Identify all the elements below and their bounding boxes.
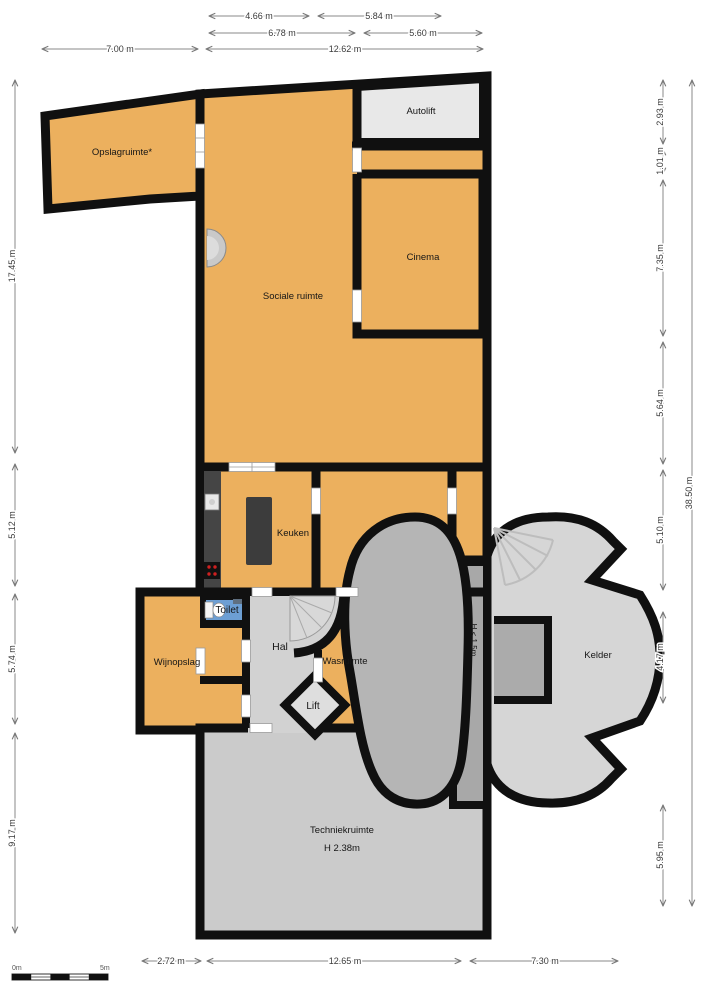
room-label-kelder: Kelder <box>584 650 611 661</box>
dim-top-3: 6.78 m <box>268 28 296 38</box>
dim-left-4: 9.17 m <box>7 819 17 847</box>
stove-burner <box>213 572 216 575</box>
room-label-wasruimte: Wasruimte <box>322 656 367 667</box>
floorplan-canvas: Opslagruimte* Autolift Cinema Sociale ru… <box>0 0 707 1000</box>
dim-top-2: 5.84 m <box>365 11 393 21</box>
room-label-cinema: Cinema <box>407 252 440 263</box>
stove-burner <box>207 565 210 568</box>
dim-top-4: 5.60 m <box>409 28 437 38</box>
dim-right-6: 4.17 m <box>655 643 665 671</box>
toilet-fixture-icon <box>205 602 213 618</box>
room-label-sociale-ruimte: Sociale ruimte <box>263 291 323 302</box>
room-label-toilet: Toilet <box>215 605 239 616</box>
label-low-clearance: H < 1.5m <box>469 624 478 657</box>
label-techniekruimte-height: H 2.38m <box>324 843 360 854</box>
dim-right-7: 5.95 m <box>655 841 665 869</box>
kelder-inner-room <box>494 620 548 700</box>
dim-left-2: 5.12 m <box>7 511 17 539</box>
dim-right-2: 1.01 m <box>655 147 665 175</box>
room-label-hal: Hal <box>272 641 288 653</box>
room-kelder <box>487 517 660 803</box>
kitchen-stove-icon <box>204 562 220 579</box>
dim-left-1: 17.45 m <box>7 250 17 283</box>
dim-left-3: 5.74 m <box>7 645 17 673</box>
room-label-wijnopslag: Wijnopslag <box>154 657 200 668</box>
dim-right-1: 2.93 m <box>655 98 665 126</box>
room-label-autolift: Autolift <box>406 106 435 117</box>
dim-bottom-2: 12.65 m <box>329 956 362 966</box>
stove-burner <box>207 572 210 575</box>
dim-right-total: 38.50 m <box>684 477 694 510</box>
dim-right-3: 7.35 m <box>655 244 665 272</box>
dim-top-5: 7.00 m <box>106 44 134 54</box>
scale-bar-start: 0m <box>12 965 22 972</box>
room-label-techniekruimte: Techniekruimte <box>310 825 374 836</box>
dim-right-4: 5.64 m <box>655 389 665 417</box>
toilet-cistern-icon <box>233 599 242 604</box>
dim-top-1: 4.66 m <box>245 11 273 21</box>
room-label-keuken: Keuken <box>277 528 309 539</box>
dim-bottom-1: 2.72 m <box>157 956 185 966</box>
kitchen-sink-basin <box>209 499 215 505</box>
stove-burner <box>213 565 216 568</box>
scale-bar: 0m 5m <box>12 965 110 980</box>
dim-bottom-3: 7.30 m <box>531 956 559 966</box>
floorplan-drawing: Opslagruimte* Autolift Cinema Sociale ru… <box>0 0 707 1000</box>
room-label-opslagruimte: Opslagruimte* <box>92 147 152 158</box>
room-label-lift: Lift <box>306 701 320 712</box>
kitchen-island <box>246 497 272 565</box>
dim-top-6: 12.62 m <box>329 44 362 54</box>
scale-bar-end: 5m <box>100 965 110 972</box>
dim-right-5: 5.10 m <box>655 516 665 544</box>
